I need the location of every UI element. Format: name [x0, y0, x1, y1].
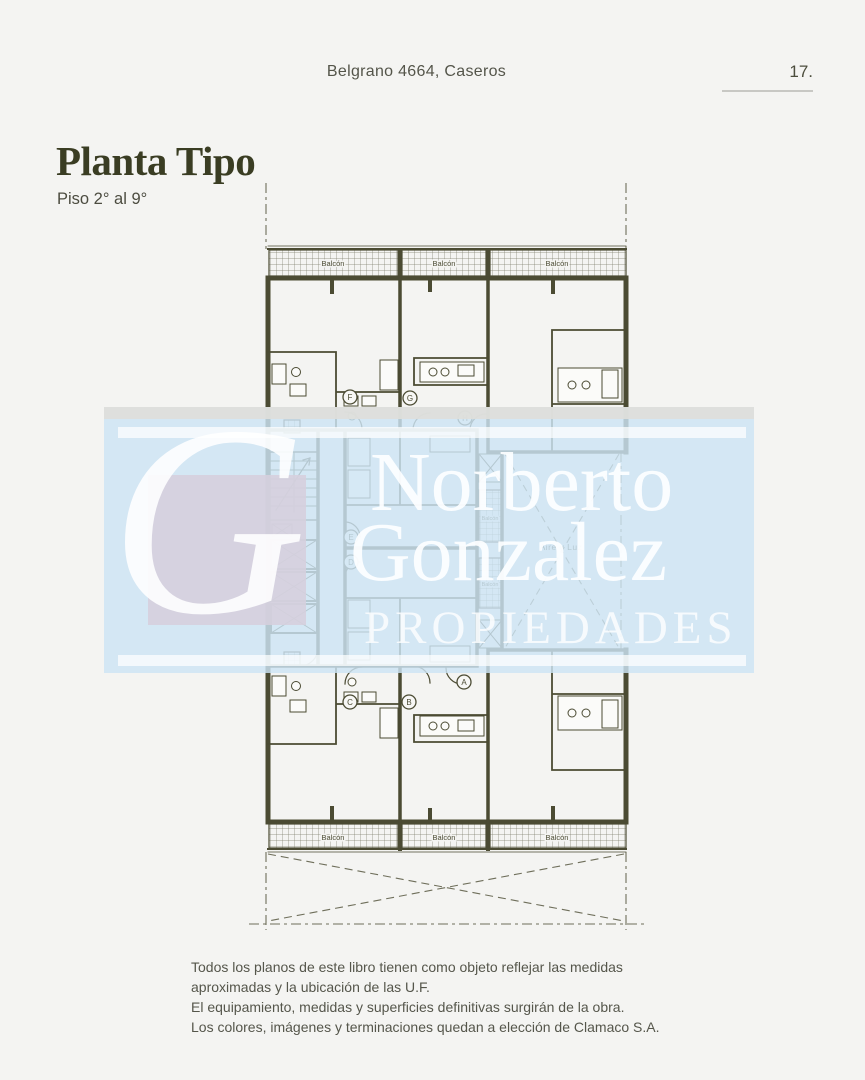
disclaimer-line: Los colores, imágenes y terminaciones qu…: [191, 1017, 659, 1037]
balcony-label: Balcón: [546, 259, 569, 268]
balcony-label: Balcón: [546, 833, 569, 842]
balcony-label: Balcón: [322, 259, 345, 268]
disclaimer: Todos los planos de este libro tienen co…: [191, 957, 659, 1037]
balcony-label: Balcón: [433, 833, 456, 842]
page-number-rule: [722, 90, 813, 92]
page-number: 17.: [789, 62, 813, 82]
unit-letter: C: [347, 698, 353, 707]
watermark-name-line2: Gonzalez: [350, 511, 667, 595]
unit-letter: F: [348, 393, 353, 402]
disclaimer-line: El equipamiento, medidas y superficies d…: [191, 997, 659, 1017]
watermark-monogram: G: [110, 407, 306, 657]
page-subtitle: Piso 2° al 9°: [57, 190, 147, 209]
unit-letter: A: [461, 678, 467, 687]
disclaimer-line: Todos los planos de este libro tienen co…: [191, 957, 659, 977]
watermark-band: G Norberto Gonzalez PROPIEDADES: [104, 407, 754, 673]
header-address: Belgrano 4664, Caseros: [0, 63, 833, 81]
unit-letter: G: [407, 394, 413, 403]
disclaimer-line: aproximadas y la ubicación de las U.F.: [191, 977, 659, 997]
watermark-tagline: PROPIEDADES: [364, 601, 738, 655]
page-title: Planta Tipo: [56, 137, 255, 185]
balcony-label: Balcón: [433, 259, 456, 268]
balcony-label: Balcón: [322, 833, 345, 842]
unit-letter: B: [406, 698, 411, 707]
